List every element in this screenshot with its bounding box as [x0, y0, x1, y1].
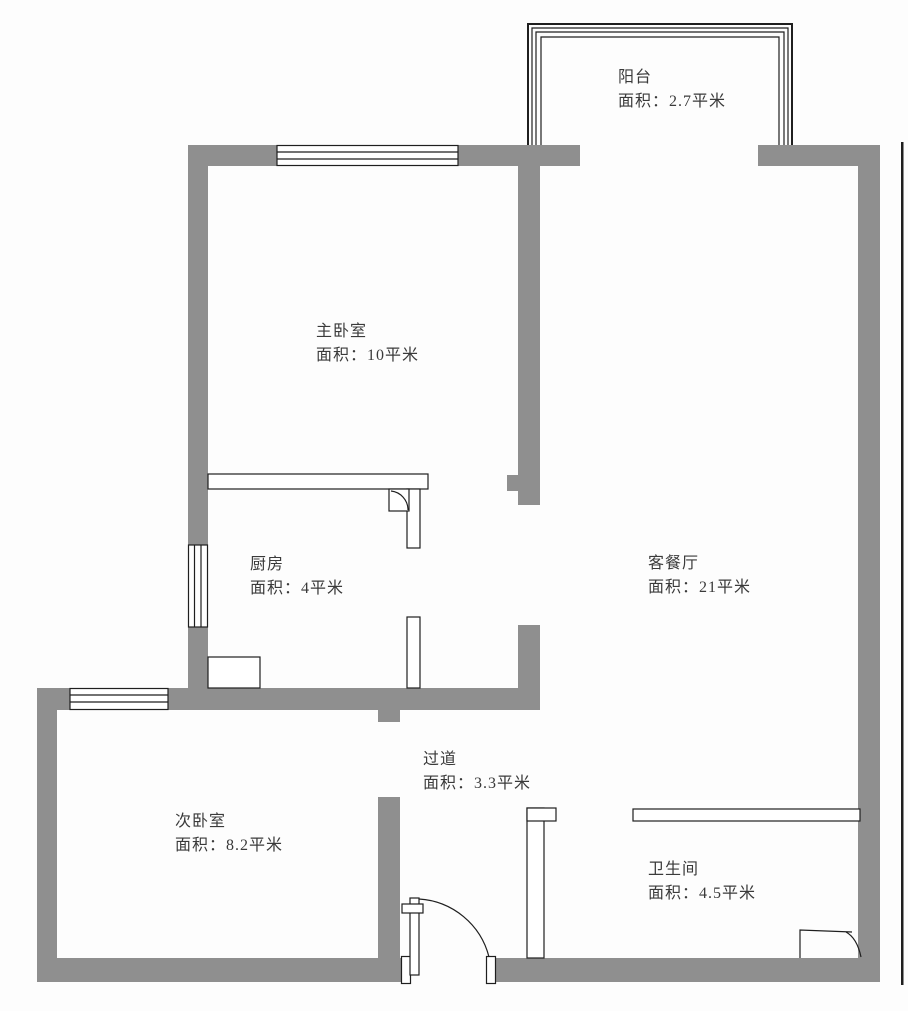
room-area: 面积：2.7平米 [618, 90, 726, 114]
master-bedroom-window [277, 146, 458, 166]
left-outer-wall [37, 688, 57, 982]
bottom-wall-left [37, 958, 401, 982]
room-name: 客餐厅 [648, 552, 751, 576]
center-wall-notch [507, 475, 518, 491]
room-label-second-bedroom: 次卧室 面积：8.2平米 [175, 810, 283, 858]
bathroom-partition-corner [527, 808, 556, 821]
room-label-hallway: 过道 面积：3.3平米 [423, 748, 531, 796]
entry-door-handle [402, 904, 423, 913]
floor-plan-drawing [0, 0, 908, 1011]
kitchen-cabinet [208, 657, 260, 688]
kitchen-door-box [389, 489, 409, 511]
room-area: 面积：8.2平米 [175, 834, 283, 858]
room-name: 过道 [423, 748, 531, 772]
kitchen-window [189, 545, 208, 627]
bathroom-fixture [800, 930, 861, 958]
room-area: 面积：21平米 [648, 576, 751, 600]
window-frame [70, 689, 168, 710]
bedroom-right-wall [378, 797, 400, 958]
room-area: 面积：4平米 [250, 577, 344, 601]
floor-plan: 阳台 面积：2.7平米 主卧室 面积：10平米 客餐厅 面积：21平米 厨房 面… [0, 0, 908, 1011]
kitchen-top-partition [208, 474, 428, 489]
bottom-wall-right [490, 958, 880, 982]
kitchen-door-symbol [389, 489, 409, 511]
room-area: 面积：3.3平米 [423, 772, 531, 796]
fixture-edge [800, 930, 852, 958]
partition-walls [208, 474, 860, 958]
entry-door-jamb-right [487, 957, 496, 984]
room-name: 次卧室 [175, 810, 283, 834]
room-area: 面积：10平米 [316, 344, 419, 368]
room-label-balcony: 阳台 面积：2.7平米 [618, 66, 726, 114]
bedroom-door-stub [378, 708, 400, 722]
bathroom-left-partition [527, 808, 544, 958]
left-wall-upper [188, 145, 208, 545]
entry-door-swing-arc [419, 899, 489, 957]
room-label-living-dining: 客餐厅 面积：21平米 [648, 552, 751, 600]
second-bedroom-window [70, 689, 168, 710]
entry-door [402, 898, 496, 984]
center-wall-lower [518, 625, 540, 708]
outer-walls [37, 145, 880, 982]
kitchen-bottom-wall [168, 688, 540, 710]
room-name: 阳台 [618, 66, 726, 90]
windows [70, 146, 458, 710]
bathroom-top-partition [633, 809, 860, 821]
entry-door-jamb-left [402, 957, 411, 984]
room-name: 卫生间 [648, 858, 756, 882]
window-frame [189, 545, 208, 627]
kitchen-partition-lower [407, 617, 420, 688]
room-label-kitchen: 厨房 面积：4平米 [250, 553, 344, 601]
window-frame [277, 146, 458, 166]
room-label-bathroom: 卫生间 面积：4.5平米 [648, 858, 756, 906]
room-name: 厨房 [250, 553, 344, 577]
room-label-master-bedroom: 主卧室 面积：10平米 [316, 320, 419, 368]
room-area: 面积：4.5平米 [648, 882, 756, 906]
room-name: 主卧室 [316, 320, 419, 344]
right-outer-wall [858, 145, 880, 982]
right-edge-line [901, 142, 904, 985]
center-wall-upper [518, 145, 540, 505]
